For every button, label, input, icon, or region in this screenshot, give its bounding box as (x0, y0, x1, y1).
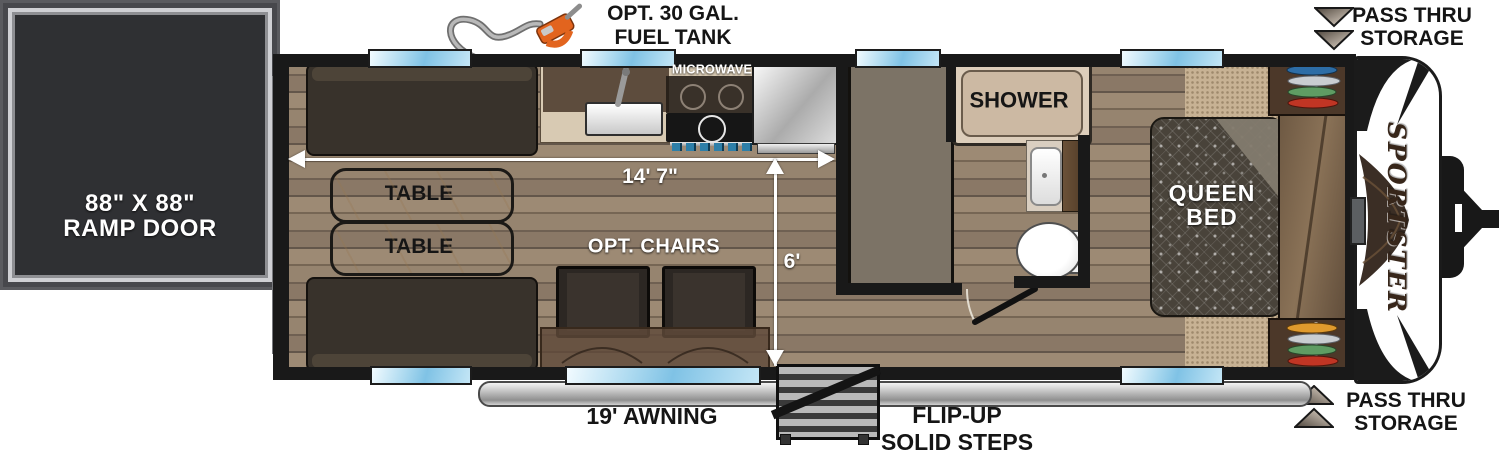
bath-sink-icon (1030, 147, 1062, 206)
storage-cabinet-top (1268, 60, 1354, 116)
hitch-notch (1455, 204, 1462, 232)
table-lower (330, 221, 514, 276)
wall-left (273, 54, 289, 380)
window (370, 366, 472, 385)
paddle-storage-icon (1270, 320, 1348, 368)
queen-bed-label: QUEEN BED (1169, 181, 1256, 229)
window (1120, 366, 1224, 385)
steps-foot (858, 434, 869, 445)
opt-chairs-label: OPT. CHAIRS (588, 237, 720, 258)
dimension-width-line (774, 160, 777, 366)
bunk-wall (836, 283, 962, 295)
bath-wall (946, 54, 956, 142)
arrow-down-icon (766, 350, 784, 366)
pass-thru-bottom-label-line1: PASS THRU (1346, 390, 1466, 412)
paddle-storage-icon (1270, 62, 1348, 110)
arrow-left-icon (288, 150, 305, 168)
storage-cabinet-bottom (1268, 318, 1354, 374)
awning-label: 19' AWNING (586, 404, 717, 428)
pass-thru-arrow-down-icon (1314, 7, 1354, 53)
bath-door-swing-icon (940, 280, 1100, 350)
bunk (848, 62, 954, 290)
shower-label: SHOWER (970, 88, 1069, 111)
dimension-length-line (296, 158, 832, 161)
floorplan-canvas: 88" X 88" RAMP DOOR MICROWAVE REFRIG TV … (0, 0, 1499, 458)
queen-bed-label-line1: QUEEN (1169, 181, 1256, 205)
pass-thru-top-label-line1: PASS THRU (1352, 5, 1472, 27)
fuel-tank-label-line1: OPT. 30 GAL. (607, 3, 739, 25)
overhead-microwave-icon (666, 76, 757, 113)
faucet-icon (608, 68, 634, 108)
arrow-up-icon (766, 158, 784, 174)
bath-wall (1014, 276, 1090, 288)
toilet-icon (1016, 222, 1082, 280)
bath-wall (1078, 135, 1090, 288)
dish-rack-icon (672, 143, 752, 151)
refrig-tv-cabinet (752, 61, 842, 145)
wardrobe (1278, 112, 1352, 324)
cap-access-door (1350, 197, 1366, 245)
ramp-door-label: 88" X 88" RAMP DOOR (63, 191, 216, 241)
steps-foot (780, 434, 791, 445)
window (580, 49, 676, 68)
roll-over-sofa-top (306, 63, 538, 156)
table-upper (330, 168, 514, 223)
ramp-door-label-line2: RAMP DOOR (63, 216, 216, 241)
window (565, 366, 761, 385)
roll-over-sofa-bottom (306, 277, 538, 372)
arrow-right-icon (818, 150, 835, 168)
ramp-door (0, 0, 280, 290)
queen-bed-label-line2: BED (1169, 205, 1256, 229)
window (1120, 49, 1224, 68)
stove-icon (666, 113, 757, 142)
dimension-width-label: 6' (784, 251, 801, 273)
ramp-door-label-line1: 88" X 88" (63, 191, 216, 216)
brand-logo: SPORTSTER (1383, 122, 1409, 314)
steps-label-line2: SOLID STEPS (881, 430, 1033, 454)
window (855, 49, 941, 68)
window (368, 49, 472, 68)
pass-thru-top-label-line2: STORAGE (1360, 28, 1463, 50)
bunk-wall (836, 54, 848, 295)
dimension-length-label: 14' 7" (622, 166, 678, 188)
fuel-tank-label-line2: FUEL TANK (614, 27, 731, 49)
microwave-label: MICROWAVE (672, 63, 752, 76)
ledge-arch-icon (542, 329, 768, 368)
chairs-ledge (540, 327, 770, 370)
pass-thru-bottom-label-line2: STORAGE (1354, 413, 1457, 435)
